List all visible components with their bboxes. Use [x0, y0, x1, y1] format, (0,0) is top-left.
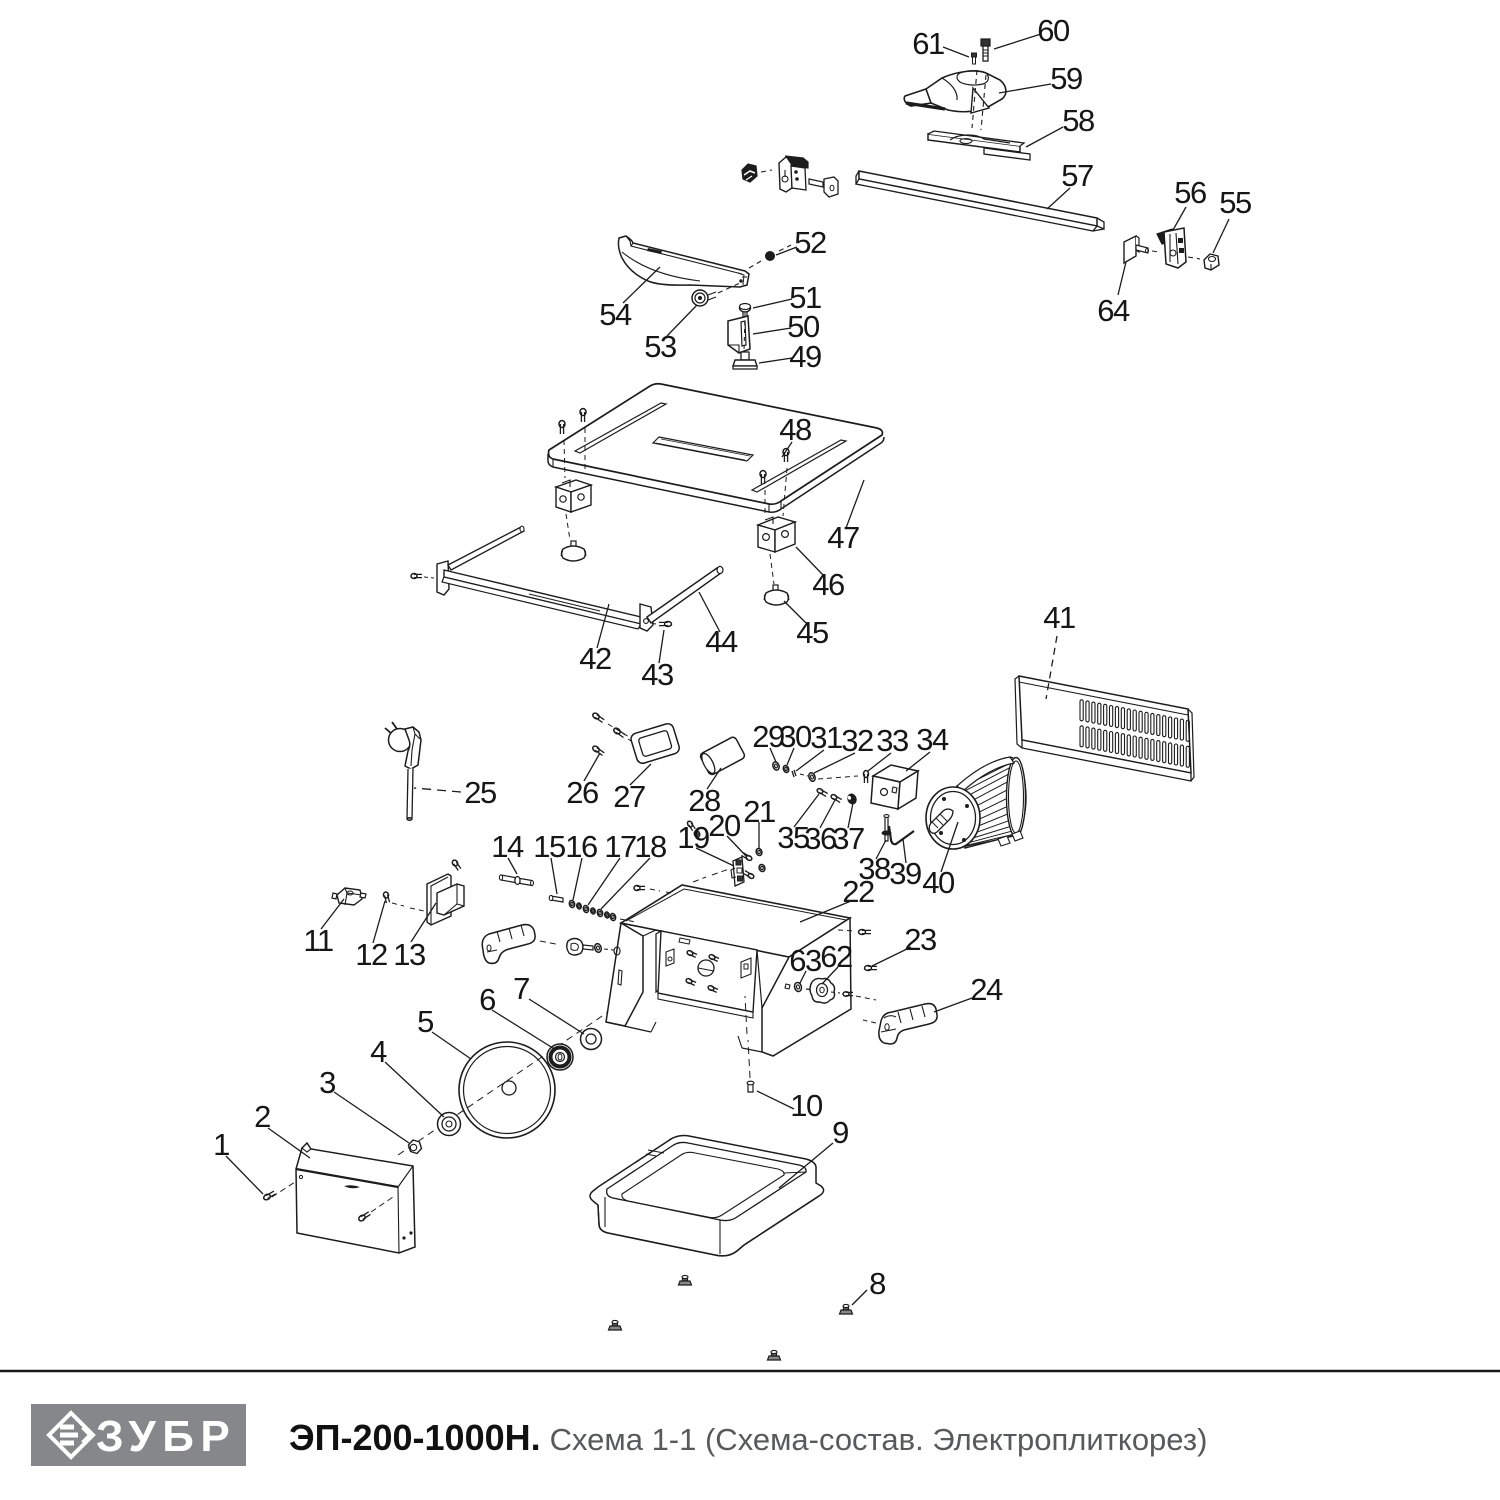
svg-text:52: 52: [794, 225, 826, 260]
svg-text:61: 61: [912, 26, 944, 61]
svg-text:25: 25: [464, 775, 496, 810]
svg-text:16: 16: [565, 829, 597, 864]
svg-text:39: 39: [889, 856, 921, 891]
svg-text:21: 21: [743, 794, 775, 829]
svg-text:27: 27: [613, 779, 645, 814]
svg-text:3: 3: [319, 1065, 335, 1100]
svg-text:17: 17: [604, 829, 636, 864]
svg-text:60: 60: [1037, 13, 1070, 48]
svg-text:22: 22: [842, 874, 874, 909]
svg-text:48: 48: [779, 412, 811, 447]
svg-text:9: 9: [832, 1115, 848, 1150]
svg-text:11: 11: [303, 923, 332, 958]
svg-text:45: 45: [796, 615, 828, 650]
svg-text:24: 24: [970, 972, 1003, 1007]
svg-text:33: 33: [876, 723, 908, 758]
svg-text:14: 14: [491, 829, 524, 864]
svg-text:19: 19: [677, 820, 709, 855]
svg-text:ЗУБР: ЗУБР: [96, 1412, 236, 1461]
svg-text:13: 13: [393, 937, 425, 972]
svg-text:15: 15: [533, 829, 565, 864]
svg-text:7: 7: [513, 971, 529, 1006]
svg-text:54: 54: [599, 297, 632, 332]
svg-text:1: 1: [213, 1127, 229, 1162]
svg-text:62: 62: [820, 939, 852, 974]
svg-text:63: 63: [789, 943, 821, 978]
svg-text:20: 20: [708, 808, 741, 843]
svg-text:64: 64: [1097, 293, 1130, 328]
svg-text:46: 46: [812, 567, 844, 602]
svg-text:31: 31: [810, 720, 842, 755]
svg-text:56: 56: [1174, 175, 1206, 210]
svg-text:36: 36: [804, 821, 836, 856]
svg-text:8: 8: [869, 1266, 885, 1301]
svg-text:47: 47: [827, 520, 859, 555]
svg-text:5: 5: [417, 1004, 433, 1039]
svg-text:2: 2: [254, 1099, 270, 1134]
svg-text:30: 30: [779, 719, 812, 754]
svg-text:34: 34: [916, 722, 949, 757]
svg-text:10: 10: [790, 1088, 823, 1123]
svg-text:ЭП-200-1000Н.Схема 1-1 (Схема-: ЭП-200-1000Н.Схема 1-1 (Схема-состав. Эл…: [289, 1417, 1207, 1458]
svg-text:18: 18: [634, 829, 666, 864]
svg-text:55: 55: [1219, 185, 1251, 220]
svg-text:23: 23: [904, 922, 936, 957]
svg-text:44: 44: [705, 624, 738, 659]
svg-text:59: 59: [1050, 61, 1082, 96]
svg-text:40: 40: [922, 865, 955, 900]
svg-text:26: 26: [566, 775, 598, 810]
svg-text:58: 58: [1062, 103, 1094, 138]
svg-text:4: 4: [370, 1034, 387, 1069]
svg-text:53: 53: [644, 329, 676, 364]
svg-text:32: 32: [841, 723, 873, 758]
svg-text:12: 12: [355, 937, 387, 972]
svg-text:6: 6: [479, 982, 495, 1017]
svg-text:49: 49: [789, 339, 821, 374]
svg-text:41: 41: [1043, 600, 1075, 635]
svg-text:43: 43: [641, 657, 673, 692]
svg-text:42: 42: [579, 641, 611, 676]
svg-text:57: 57: [1061, 158, 1093, 193]
